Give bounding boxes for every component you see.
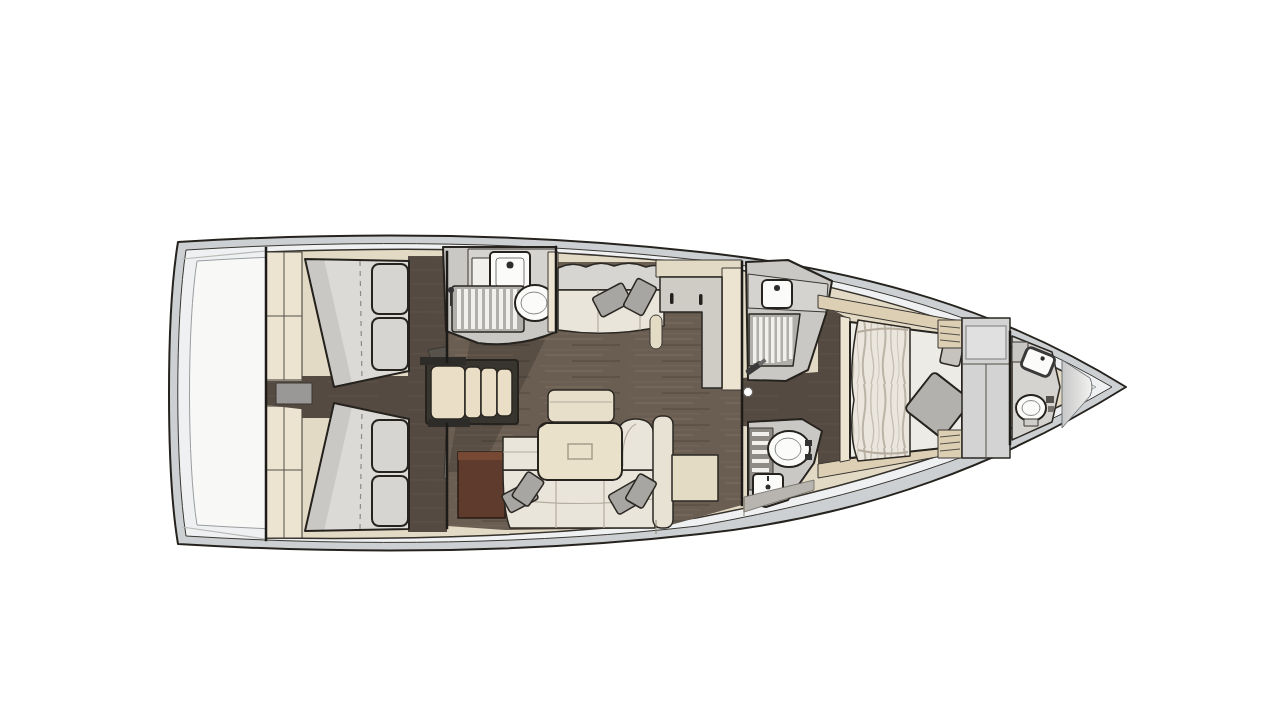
floor-plan-page: [0, 0, 1280, 720]
faucet: [774, 285, 780, 291]
step-1: [431, 366, 465, 419]
storage-cabinet: [458, 452, 505, 518]
salon-table: [538, 423, 622, 480]
pillow: [372, 318, 408, 370]
engine-hatch: [276, 383, 312, 404]
owner-cabin: [818, 295, 1010, 478]
galley-outer-panel: [722, 268, 742, 390]
wardrobe-hatch: [966, 326, 1006, 359]
grate-slats: [457, 289, 517, 329]
shower-grate: [749, 314, 800, 366]
toilet-hinge: [805, 440, 812, 446]
head-door-knob: [744, 388, 753, 397]
blanket: [852, 320, 910, 461]
toilet-bowl: [1016, 395, 1046, 421]
stool-seat: [548, 390, 614, 422]
pillow: [372, 264, 408, 314]
owner-wardrobe: [962, 318, 1010, 458]
step-4: [497, 369, 512, 416]
accessory: [1048, 406, 1054, 412]
sofa-left-chaise: [503, 437, 542, 470]
step-3: [481, 368, 497, 417]
accessory: [1046, 396, 1054, 403]
storage-cabinet-top: [458, 452, 505, 460]
faucet: [507, 262, 514, 269]
drain: [766, 485, 771, 490]
grab-rail: [650, 315, 662, 349]
stool-bench: [548, 390, 614, 422]
vanity-cabinet: [472, 258, 490, 288]
table-top: [538, 423, 622, 480]
floor-plan-canvas: [0, 0, 1280, 720]
toilet-hinge: [805, 454, 812, 460]
aft-head: [443, 247, 557, 344]
sofa-back-panel: [653, 416, 673, 528]
toilet: [768, 431, 812, 467]
sink-basin: [762, 280, 792, 308]
shower-grate: [452, 286, 524, 332]
pillow: [372, 420, 408, 472]
sink: [762, 280, 792, 308]
steps-rail: [428, 419, 470, 427]
treads: [431, 366, 512, 419]
pillow: [372, 476, 408, 526]
toilet-bowl: [768, 431, 810, 467]
side-bench: [672, 455, 718, 501]
steps-rail: [420, 357, 466, 365]
step-2: [465, 367, 481, 418]
toilet-base: [1024, 419, 1038, 426]
bed-foot-trim: [840, 316, 850, 462]
companionway-steps: [420, 357, 518, 427]
